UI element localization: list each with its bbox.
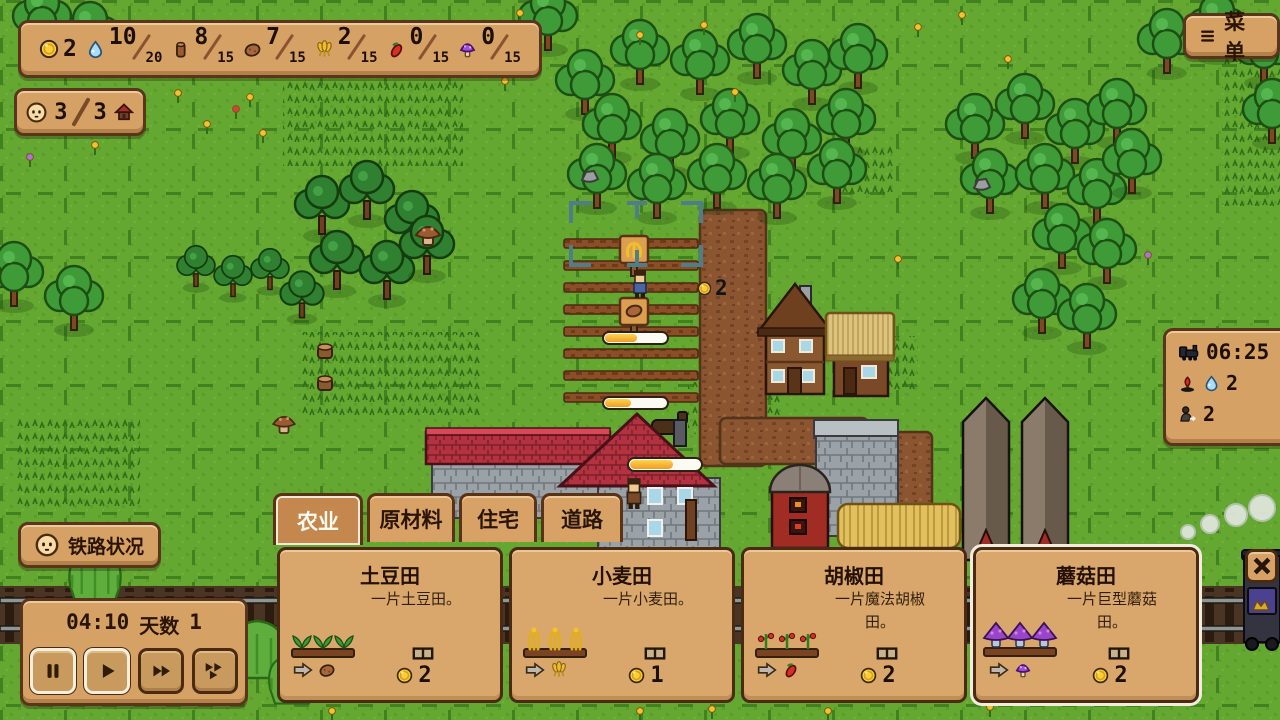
coin-icon <box>628 667 645 684</box>
pause-button[interactable] <box>30 648 76 694</box>
produces-arrow-icon <box>989 661 1009 679</box>
train-passenger-row: 2 <box>1178 402 1280 426</box>
potato-icon <box>318 661 336 679</box>
wheat-icon <box>315 40 334 59</box>
resource-bar: 2 1020 815 715 215 015 015 <box>18 20 542 78</box>
water-max: 20 <box>146 50 163 66</box>
population-max: 3 <box>94 100 107 125</box>
potato-field-sprite <box>290 622 356 660</box>
pepper-icon <box>387 40 406 59</box>
resource-coin: 2 <box>39 36 77 62</box>
resource-water: 1020 <box>86 24 163 74</box>
coin-icon <box>1092 667 1109 684</box>
coin-popup: 2 <box>697 276 728 300</box>
villager-face-icon <box>26 102 47 123</box>
railway-status-label: 铁路状况 <box>68 532 144 559</box>
wood-max: 15 <box>217 50 234 66</box>
production-row <box>757 661 800 679</box>
cost-row: 2 <box>828 663 928 688</box>
train-passenger-count: 2 <box>1203 402 1215 426</box>
tab-label: 住宅 <box>477 504 519 534</box>
tab-agriculture[interactable]: 农业 <box>273 493 363 545</box>
resource-pepper: 015 <box>387 24 450 74</box>
house-icon <box>114 102 134 122</box>
coin-icon <box>860 667 877 684</box>
footprint-size-icon <box>1108 647 1130 660</box>
cost-value: 1 <box>650 663 663 688</box>
fastest-speed-icon <box>203 659 227 683</box>
tab-raw-materials[interactable]: 原材料 <box>367 493 455 542</box>
footprint-size-icon <box>644 647 666 660</box>
produces-arrow-icon <box>293 661 313 679</box>
clock-time: 04:10 <box>66 610 129 639</box>
villager-face-icon <box>35 533 59 557</box>
train-demand-row: 2 <box>1178 371 1280 395</box>
card-title: 蘑菇田 <box>976 560 1196 589</box>
water-icon <box>86 40 105 59</box>
tab-label: 道路 <box>561 504 603 534</box>
mushroom-icon <box>458 40 477 59</box>
fastest-speed-button[interactable] <box>192 648 238 694</box>
coin-icon <box>697 281 712 296</box>
wheat-icon <box>550 661 568 679</box>
train-icon <box>1178 342 1200 362</box>
crop-progress-bar <box>602 396 669 410</box>
potato-current: 7 <box>266 24 280 50</box>
fast-forward-icon <box>150 660 172 682</box>
close-panel-button[interactable] <box>1245 549 1278 583</box>
resource-wheat: 215 <box>315 24 378 74</box>
day-value: 1 <box>189 610 202 639</box>
passenger-icon <box>1178 405 1197 424</box>
wheat-max: 15 <box>361 50 378 66</box>
silo <box>770 465 830 548</box>
fast-forward-button[interactable] <box>138 648 184 694</box>
wood-current: 8 <box>194 24 208 50</box>
pepper-current: 0 <box>410 24 424 50</box>
water-current: 10 <box>109 24 137 50</box>
card-description: 一片魔法胡椒田。 <box>830 588 930 634</box>
game-viewport[interactable]: 2 2 1020 815 715 215 015 015 3 3 菜单 06:2… <box>0 0 1280 720</box>
produces-arrow-icon <box>525 661 545 679</box>
card-description: 一片土豆田。 <box>366 588 466 611</box>
footprint-size-icon <box>876 647 898 660</box>
cost-row: 2 <box>364 663 464 688</box>
coin-count: 2 <box>63 36 77 62</box>
crop-progress-bar <box>627 457 703 472</box>
produces-arrow-icon <box>757 661 777 679</box>
train-arrival-time: 06:25 <box>1206 340 1269 364</box>
mushroom-field-sprite <box>982 612 1058 658</box>
card-title: 土豆田 <box>280 560 500 589</box>
wheat-field-sprite <box>522 622 588 660</box>
menu-button-label: 菜单 <box>1224 6 1264 66</box>
card-description: 一片小麦田。 <box>598 588 698 611</box>
speed-controls <box>23 648 245 694</box>
coin-icon <box>396 667 413 684</box>
resource-mushroom: 015 <box>458 24 521 74</box>
water-icon <box>1203 375 1220 392</box>
hamburger-icon <box>1199 27 1216 45</box>
tab-housing[interactable]: 住宅 <box>459 493 537 542</box>
play-button[interactable] <box>84 648 130 694</box>
build-card-potato-field[interactable]: 土豆田 一片土豆田。 2 <box>277 547 503 703</box>
card-description: 一片巨型蘑菇田。 <box>1062 588 1162 634</box>
close-icon <box>1251 555 1273 577</box>
population-current: 3 <box>54 100 67 125</box>
resource-wood: 815 <box>171 24 234 74</box>
cost-row: 2 <box>1060 663 1160 688</box>
train-arrival-row: 06:25 <box>1178 340 1280 364</box>
card-title: 小麦田 <box>512 560 732 589</box>
card-title: 胡椒田 <box>744 560 964 589</box>
build-card-wheat-field[interactable]: 小麦田 一片小麦田。 1 <box>509 547 735 703</box>
production-row <box>525 661 568 679</box>
production-row <box>293 661 336 679</box>
pepper-field-sprite <box>754 622 820 660</box>
train-schedule-panel: 06:25 2 2 <box>1163 328 1280 446</box>
menu-button[interactable]: 菜单 <box>1183 13 1280 59</box>
thatch-cottage <box>826 313 894 396</box>
potato-icon <box>243 40 262 59</box>
wheat-current: 2 <box>338 24 352 50</box>
train-water-demand: 2 <box>1226 371 1238 395</box>
railway-status-button[interactable]: 铁路状况 <box>18 522 161 568</box>
mushroom-icon <box>1014 661 1032 679</box>
mushroom-max: 15 <box>504 50 521 66</box>
production-row <box>989 661 1032 679</box>
time-panel: 04:10 天数 1 <box>20 598 248 706</box>
pepper-icon <box>782 661 800 679</box>
population-badge: 3 3 <box>14 88 146 136</box>
cost-value: 2 <box>418 663 431 688</box>
tab-roads[interactable]: 道路 <box>541 493 623 542</box>
potato-max: 15 <box>289 50 306 66</box>
pause-icon <box>42 660 64 682</box>
mushroom-current: 0 <box>481 24 495 50</box>
build-card-pepper-field[interactable]: 胡椒田 一片魔法胡椒田。 2 <box>741 547 967 703</box>
pepper-max: 15 <box>432 50 449 66</box>
fraction-slash <box>71 97 90 127</box>
cost-value: 2 <box>882 663 895 688</box>
cost-value: 2 <box>1114 663 1127 688</box>
resource-potato: 715 <box>243 24 306 74</box>
day-label: 天数 <box>139 610 179 639</box>
log-icon <box>171 40 190 59</box>
tab-label: 原材料 <box>380 504 443 534</box>
cost-row: 1 <box>596 663 696 688</box>
play-icon <box>96 660 118 682</box>
coin-icon <box>39 39 59 59</box>
hay-stack <box>838 504 960 548</box>
footprint-size-icon <box>412 647 434 660</box>
tab-label: 农业 <box>297 506 339 536</box>
coin-popup-value: 2 <box>715 276 728 300</box>
signal-icon <box>1178 374 1197 393</box>
crop-progress-bar <box>602 331 669 345</box>
clock-row: 04:10 天数 1 <box>23 610 245 639</box>
build-card-mushroom-field[interactable]: 蘑菇田 一片巨型蘑菇田。 2 <box>973 547 1199 703</box>
